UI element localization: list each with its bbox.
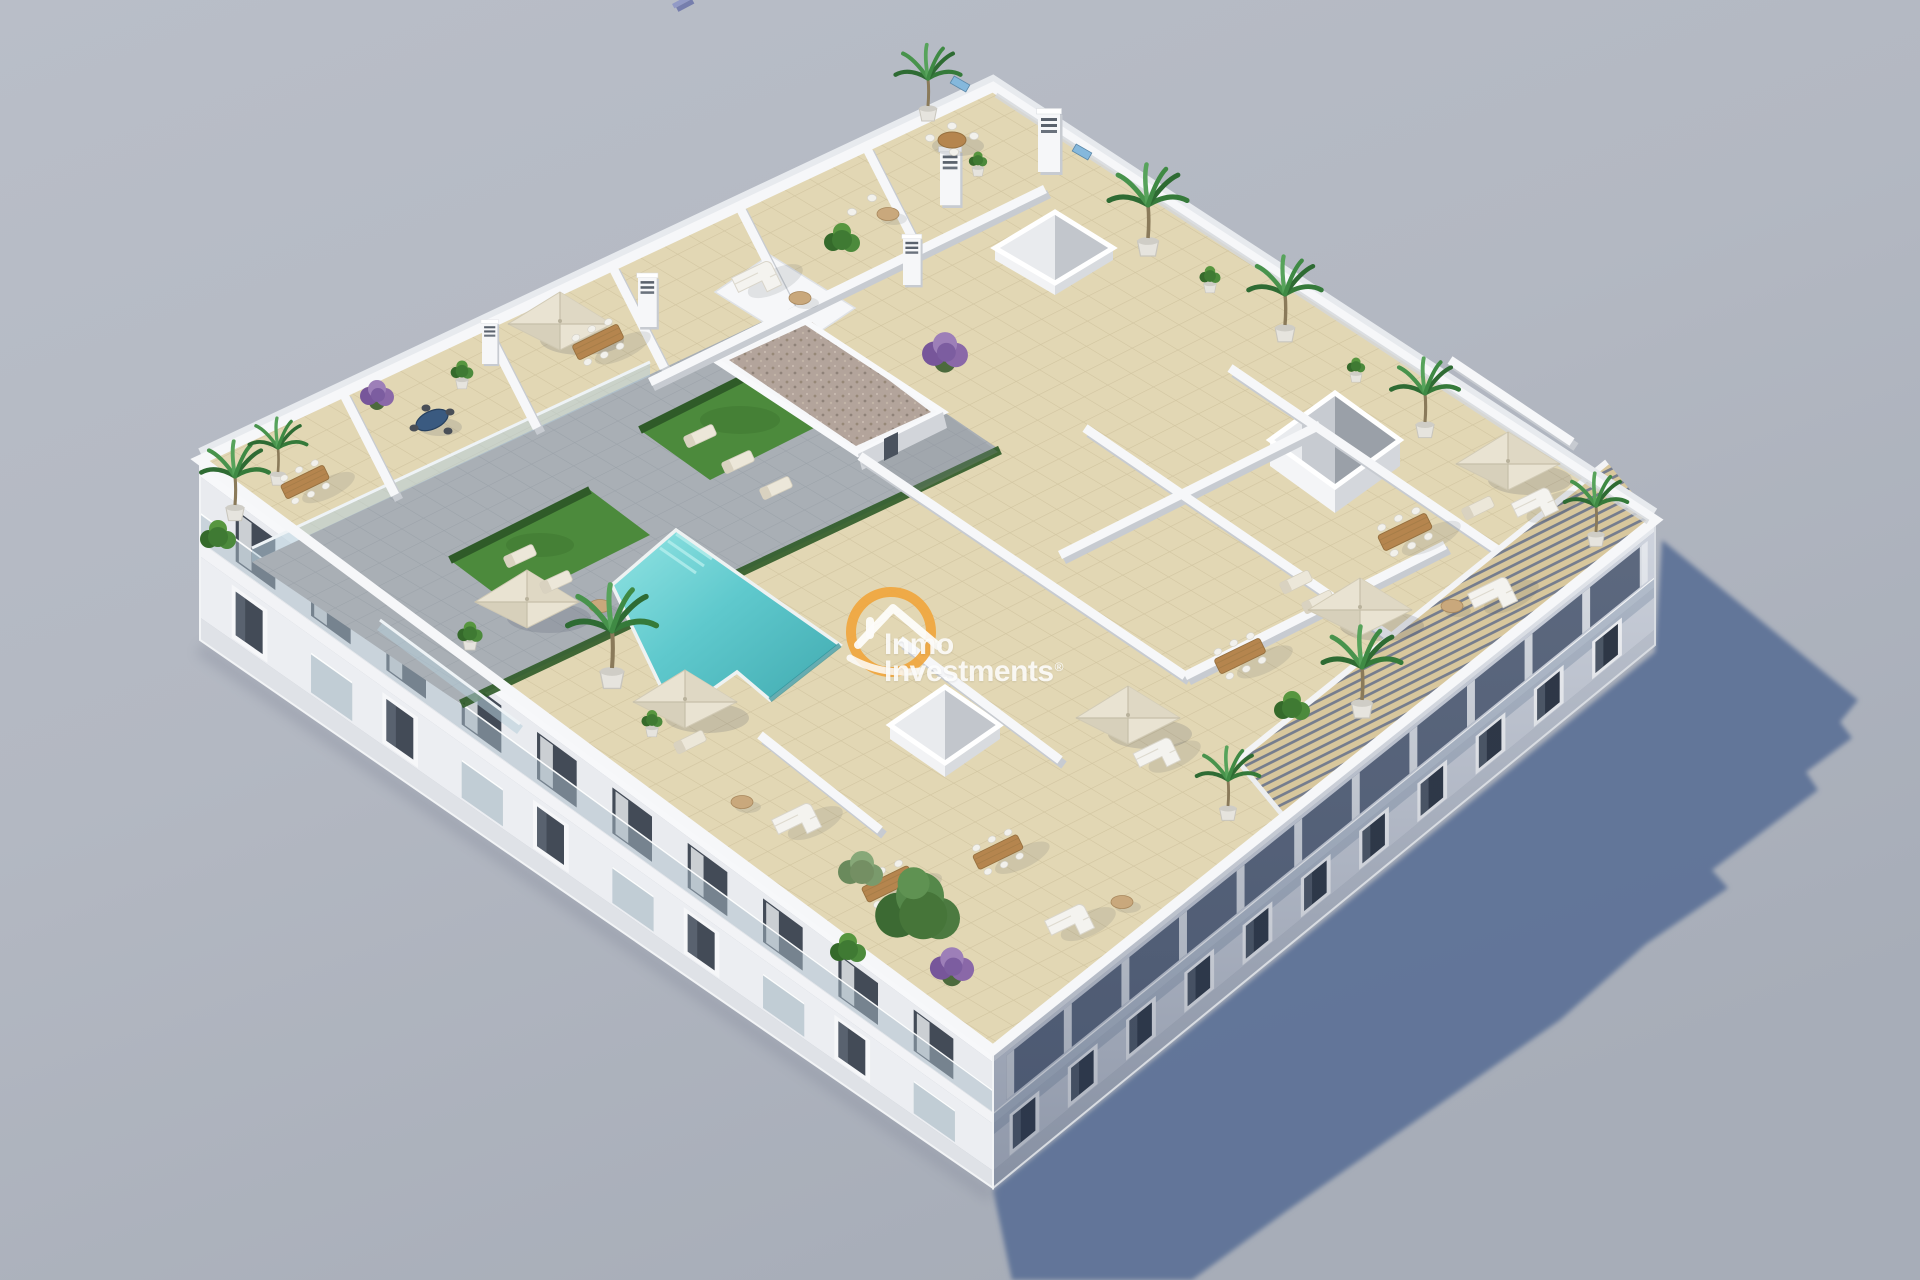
armchair — [847, 208, 856, 215]
render-canvas: Inmo Investments® — [0, 0, 1920, 1280]
building-render-scene — [0, 0, 1920, 1280]
armchair — [867, 194, 876, 201]
